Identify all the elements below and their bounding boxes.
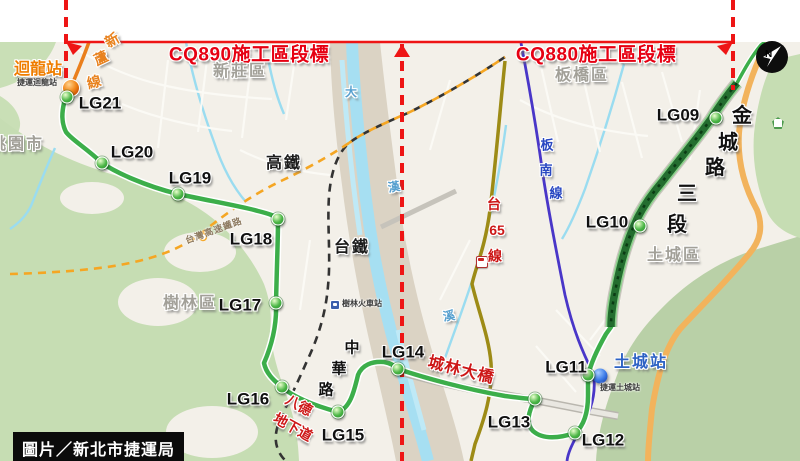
station-dot-lg09[interactable] <box>710 112 723 125</box>
station-dot-lg13[interactable] <box>529 393 542 406</box>
station-dot-lg18[interactable] <box>272 213 285 226</box>
compass-icon: N <box>755 40 789 74</box>
map-canvas <box>0 0 800 461</box>
station-dot-lg15[interactable] <box>332 406 345 419</box>
compass-north-letter: N <box>765 49 772 60</box>
station-dot-lg20[interactable] <box>96 157 109 170</box>
station-dot-lg17[interactable] <box>270 297 283 310</box>
station-dot-lg11[interactable] <box>582 369 595 382</box>
construction-zone-map: N LG21LG20LG19LG18LG17LG16LG15LG14LG13LG… <box>0 0 800 461</box>
hsr-marker <box>200 234 207 241</box>
credit-badge: 圖片／新北市捷運局 <box>13 432 184 461</box>
station-dot-lg21[interactable] <box>61 91 74 104</box>
top-band <box>0 0 800 42</box>
station-dot-lg16[interactable] <box>276 381 289 394</box>
station-dot-lg19[interactable] <box>172 188 185 201</box>
route65-shield-icon <box>476 256 488 268</box>
tucheng-terminal-marker[interactable] <box>593 369 608 384</box>
train-station-icon <box>330 300 340 310</box>
station-dot-lg12[interactable] <box>569 427 582 440</box>
station-dot-lg14[interactable] <box>392 363 405 376</box>
station-dot-lg10[interactable] <box>634 220 647 233</box>
